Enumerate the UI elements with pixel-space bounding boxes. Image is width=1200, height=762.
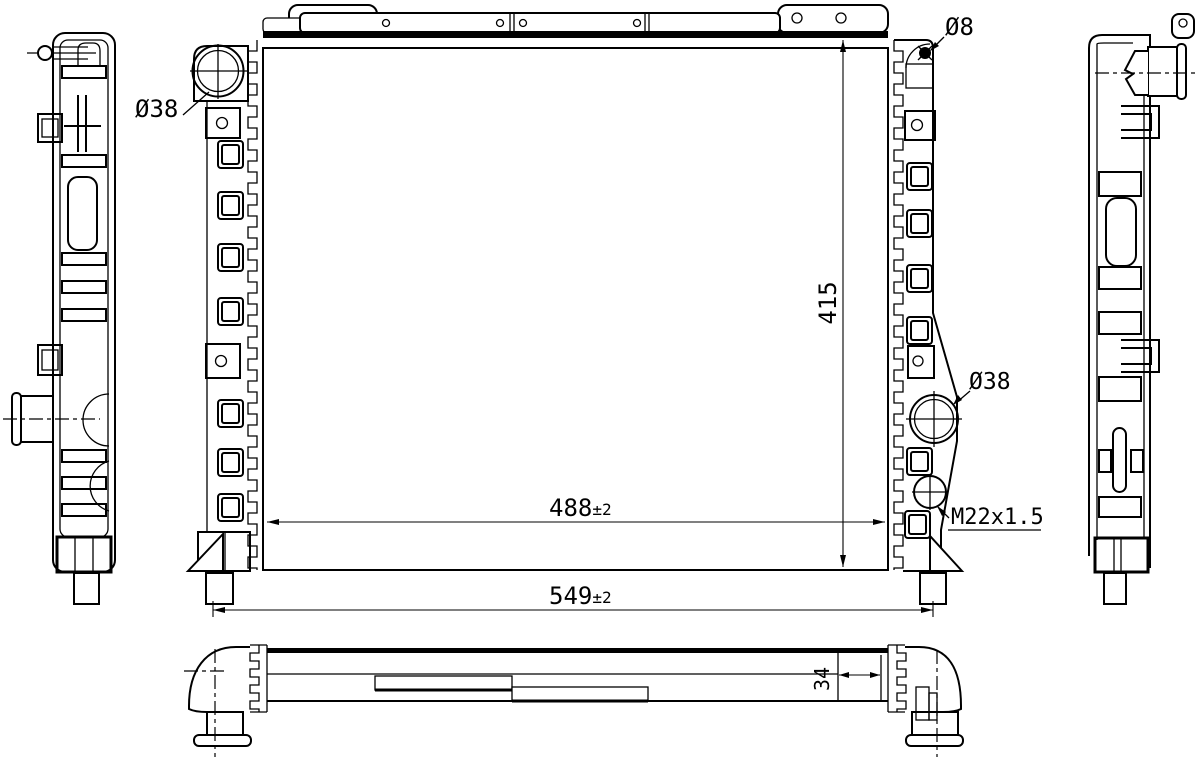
mounting-strip — [300, 13, 780, 33]
right-side-view — [1089, 14, 1199, 604]
top-header-bar — [263, 31, 888, 38]
elbow-outer — [905, 647, 961, 712]
side-ladder-rungs — [62, 66, 106, 516]
left-side-view — [3, 33, 115, 604]
right-tank-serration — [894, 40, 903, 570]
bottom-view — [184, 645, 963, 757]
drawing-canvas: 415 488±2 549±2 34 Ø38 — [0, 0, 1200, 762]
callout-drain-label: M22x1.5 — [951, 505, 1044, 530]
radiator-technical-drawing: 415 488±2 549±2 34 Ø38 — [0, 0, 1200, 762]
tube-cross-detail — [64, 95, 101, 152]
callout-outlet-label: Ø38 — [969, 369, 1011, 395]
dim-pipe-section-label: 34 — [810, 667, 834, 691]
callout-pin-label: Ø8 — [945, 13, 974, 41]
dim-core-width: 488±2 — [267, 494, 885, 525]
side-bottom-block — [57, 537, 111, 572]
left-gusset — [188, 534, 223, 571]
inner-tube-1 — [375, 676, 512, 690]
callout-outlet: Ø38 — [953, 369, 1011, 405]
bottom-body-top-edge — [267, 648, 888, 653]
core — [263, 48, 888, 570]
right-tank-slot — [906, 64, 933, 88]
bottom-right-elbow — [888, 645, 963, 757]
callout-inlet-label: Ø38 — [135, 95, 178, 123]
left-foot — [206, 573, 233, 604]
dim-height-label: 415 — [814, 281, 842, 324]
dim-overall-width-label: 549±2 — [549, 582, 612, 610]
side-slot — [68, 177, 97, 250]
callout-pin: Ø8 — [930, 13, 974, 51]
left-tank-ladder — [218, 141, 243, 521]
top-tab — [1172, 14, 1194, 38]
mounting-bracket-right — [778, 5, 888, 33]
left-flange-serration — [250, 645, 259, 712]
side-pipe-stub — [3, 393, 100, 445]
left-tank-bracket-lower — [206, 344, 240, 378]
dim-pipe-section: 34 — [810, 667, 880, 691]
inner-tube-2 — [512, 687, 648, 701]
right-gusset — [930, 536, 962, 571]
side-clip-lower — [1121, 340, 1159, 372]
pipe-end-cap — [906, 735, 963, 746]
side-outlet-pipe — [1095, 44, 1199, 99]
side-clip-upper — [38, 114, 62, 142]
left-tank — [188, 40, 257, 604]
right-foot — [920, 573, 946, 604]
pipe-bulge-upper — [83, 394, 109, 446]
down-pipe — [912, 712, 958, 735]
pipe-end-cap — [194, 735, 251, 746]
callout-drain: M22x1.5 — [937, 505, 1044, 530]
elbow-outer — [189, 647, 250, 712]
right-side-foot — [1104, 573, 1126, 604]
dim-overall-width: 549±2 — [213, 582, 933, 617]
right-side-ladder — [1099, 172, 1143, 517]
dim-core-width-label: 488±2 — [549, 494, 612, 522]
side-foot — [74, 573, 99, 604]
right-flange-serration — [897, 645, 906, 712]
inlet-housing — [194, 46, 248, 101]
side-oval-slot — [1113, 428, 1126, 492]
right-tank-bracket-lower — [908, 346, 934, 378]
left-tank-bracket-upper — [206, 108, 240, 138]
dim-height: 415 — [814, 40, 846, 567]
right-tank-bracket-upper — [905, 111, 935, 140]
side-clip-lower — [38, 345, 62, 375]
bleed-valve-ball — [38, 46, 52, 60]
left-tank-serration — [248, 40, 257, 570]
down-pipe — [207, 712, 243, 735]
bottom-left-elbow — [184, 645, 267, 757]
side-clip-upper — [1121, 106, 1159, 138]
